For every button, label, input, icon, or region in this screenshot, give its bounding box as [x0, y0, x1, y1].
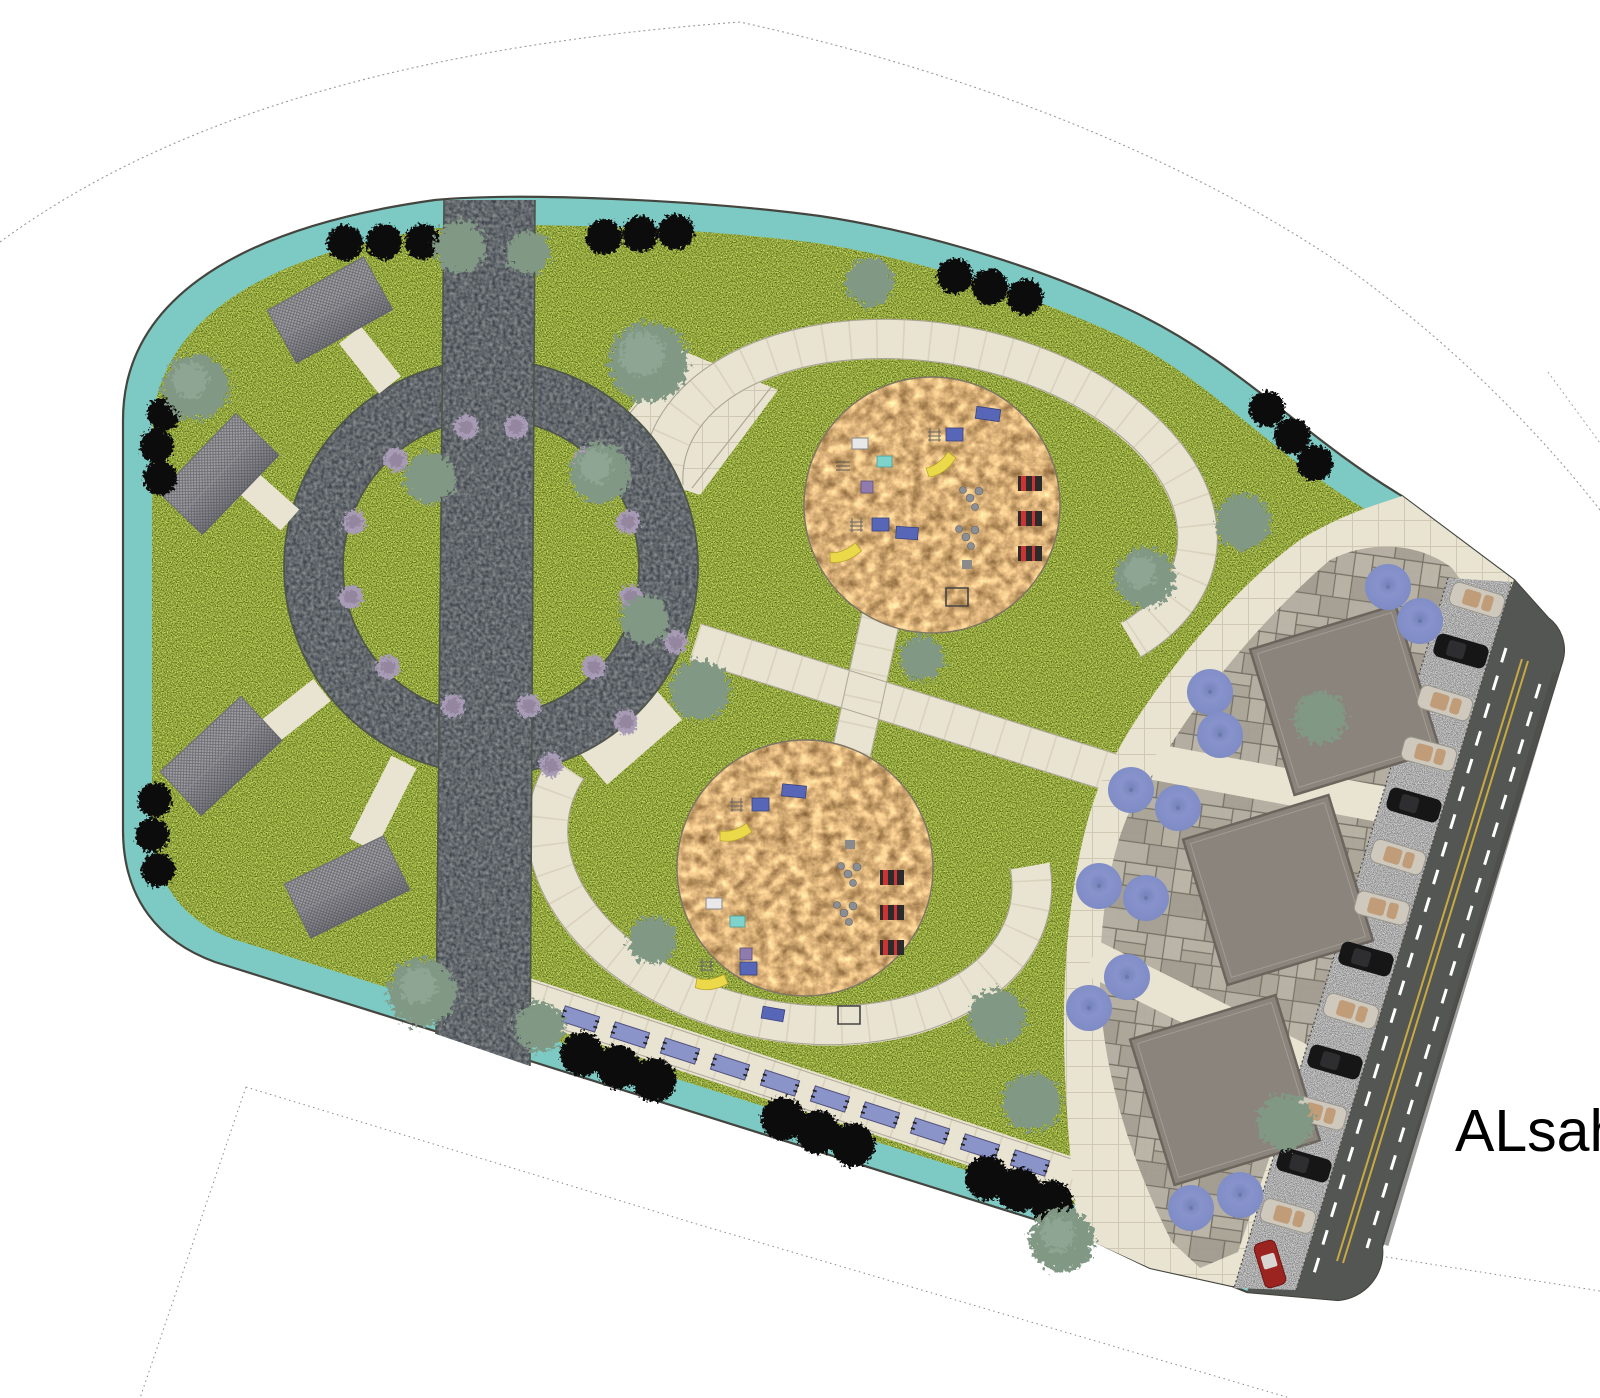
svg-text:ALsahafa: ALsahafa	[1455, 1098, 1600, 1164]
